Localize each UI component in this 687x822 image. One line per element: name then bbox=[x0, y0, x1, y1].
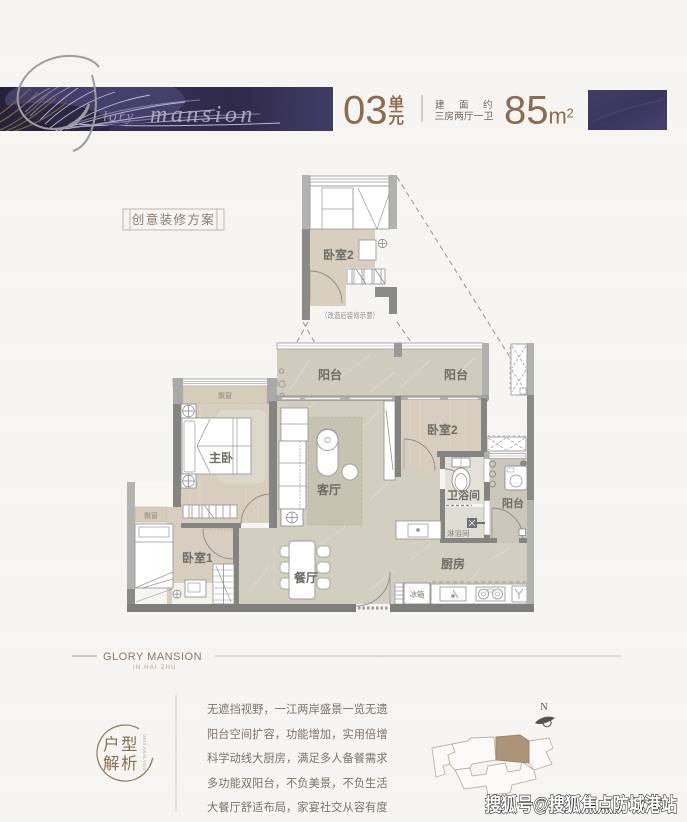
svg-text:卧室2: 卧室2 bbox=[323, 247, 354, 262]
svg-text:GLORY MANSION: GLORY MANSION bbox=[103, 651, 202, 663]
svg-text:阳台: 阳台 bbox=[502, 496, 524, 510]
svg-text:解析: 解析 bbox=[103, 754, 139, 773]
svg-text:冰箱: 冰箱 bbox=[410, 589, 425, 599]
svg-text:（改造后装修示意）: （改造后装修示意） bbox=[321, 310, 379, 320]
svg-text:85: 85 bbox=[504, 89, 549, 133]
svg-text:搜狐号@搜狐焦点防城港站: 搜狐号@搜狐焦点防城港站 bbox=[485, 793, 677, 816]
svg-text:IN HAI ZHU: IN HAI ZHU bbox=[133, 665, 177, 671]
svg-text:阳台: 阳台 bbox=[444, 367, 468, 382]
svg-text:多功能双阳台，不负美景，不负生活: 多功能双阳台，不负美景，不负生活 bbox=[207, 776, 388, 790]
svg-text:大餐厅舒适布局，家宴社交从容有度: 大餐厅舒适布局，家宴社交从容有度 bbox=[207, 800, 388, 814]
svg-text:飘窗: 飘窗 bbox=[218, 391, 232, 400]
svg-text:三房两厅一卫: 三房两厅一卫 bbox=[435, 110, 494, 123]
svg-text:m: m bbox=[549, 104, 567, 129]
svg-text:03: 03 bbox=[343, 89, 388, 133]
svg-text:淋浴间: 淋浴间 bbox=[447, 528, 470, 538]
svg-text:阳台空间扩容，功能增加，实用倍增: 阳台空间扩容，功能增加，实用倍增 bbox=[207, 727, 388, 741]
svg-text:客厅: 客厅 bbox=[316, 482, 341, 497]
svg-text:无遮挡视野，一江两岸盛景一览无遗: 无遮挡视野，一江两岸盛景一览无遗 bbox=[207, 702, 388, 716]
svg-text:mansion: mansion bbox=[150, 102, 256, 128]
svg-text:卧室1: 卧室1 bbox=[182, 550, 213, 565]
svg-text:卫浴间: 卫浴间 bbox=[447, 488, 480, 502]
svg-text:厨房: 厨房 bbox=[441, 556, 465, 571]
svg-text:元: 元 bbox=[389, 110, 405, 127]
svg-text:N: N bbox=[540, 702, 547, 713]
svg-text:建面约: 建面约 bbox=[435, 99, 493, 111]
svg-text:飘窗: 飘窗 bbox=[144, 511, 158, 520]
svg-text:UNIT ANALYSIS: UNIT ANALYSIS bbox=[142, 734, 147, 771]
svg-text:lory: lory bbox=[103, 109, 135, 125]
svg-text:科学动线大厨房，满足多人备餐需求: 科学动线大厨房，满足多人备餐需求 bbox=[207, 751, 388, 765]
svg-text:阳台: 阳台 bbox=[318, 367, 342, 382]
svg-text:主卧: 主卧 bbox=[209, 450, 233, 465]
svg-text:创意装修方案: 创意装修方案 bbox=[132, 212, 215, 227]
svg-text:户型: 户型 bbox=[103, 735, 139, 754]
svg-text:餐厅: 餐厅 bbox=[294, 570, 318, 585]
svg-text:卧室2: 卧室2 bbox=[427, 422, 458, 437]
svg-text:2: 2 bbox=[567, 106, 574, 121]
